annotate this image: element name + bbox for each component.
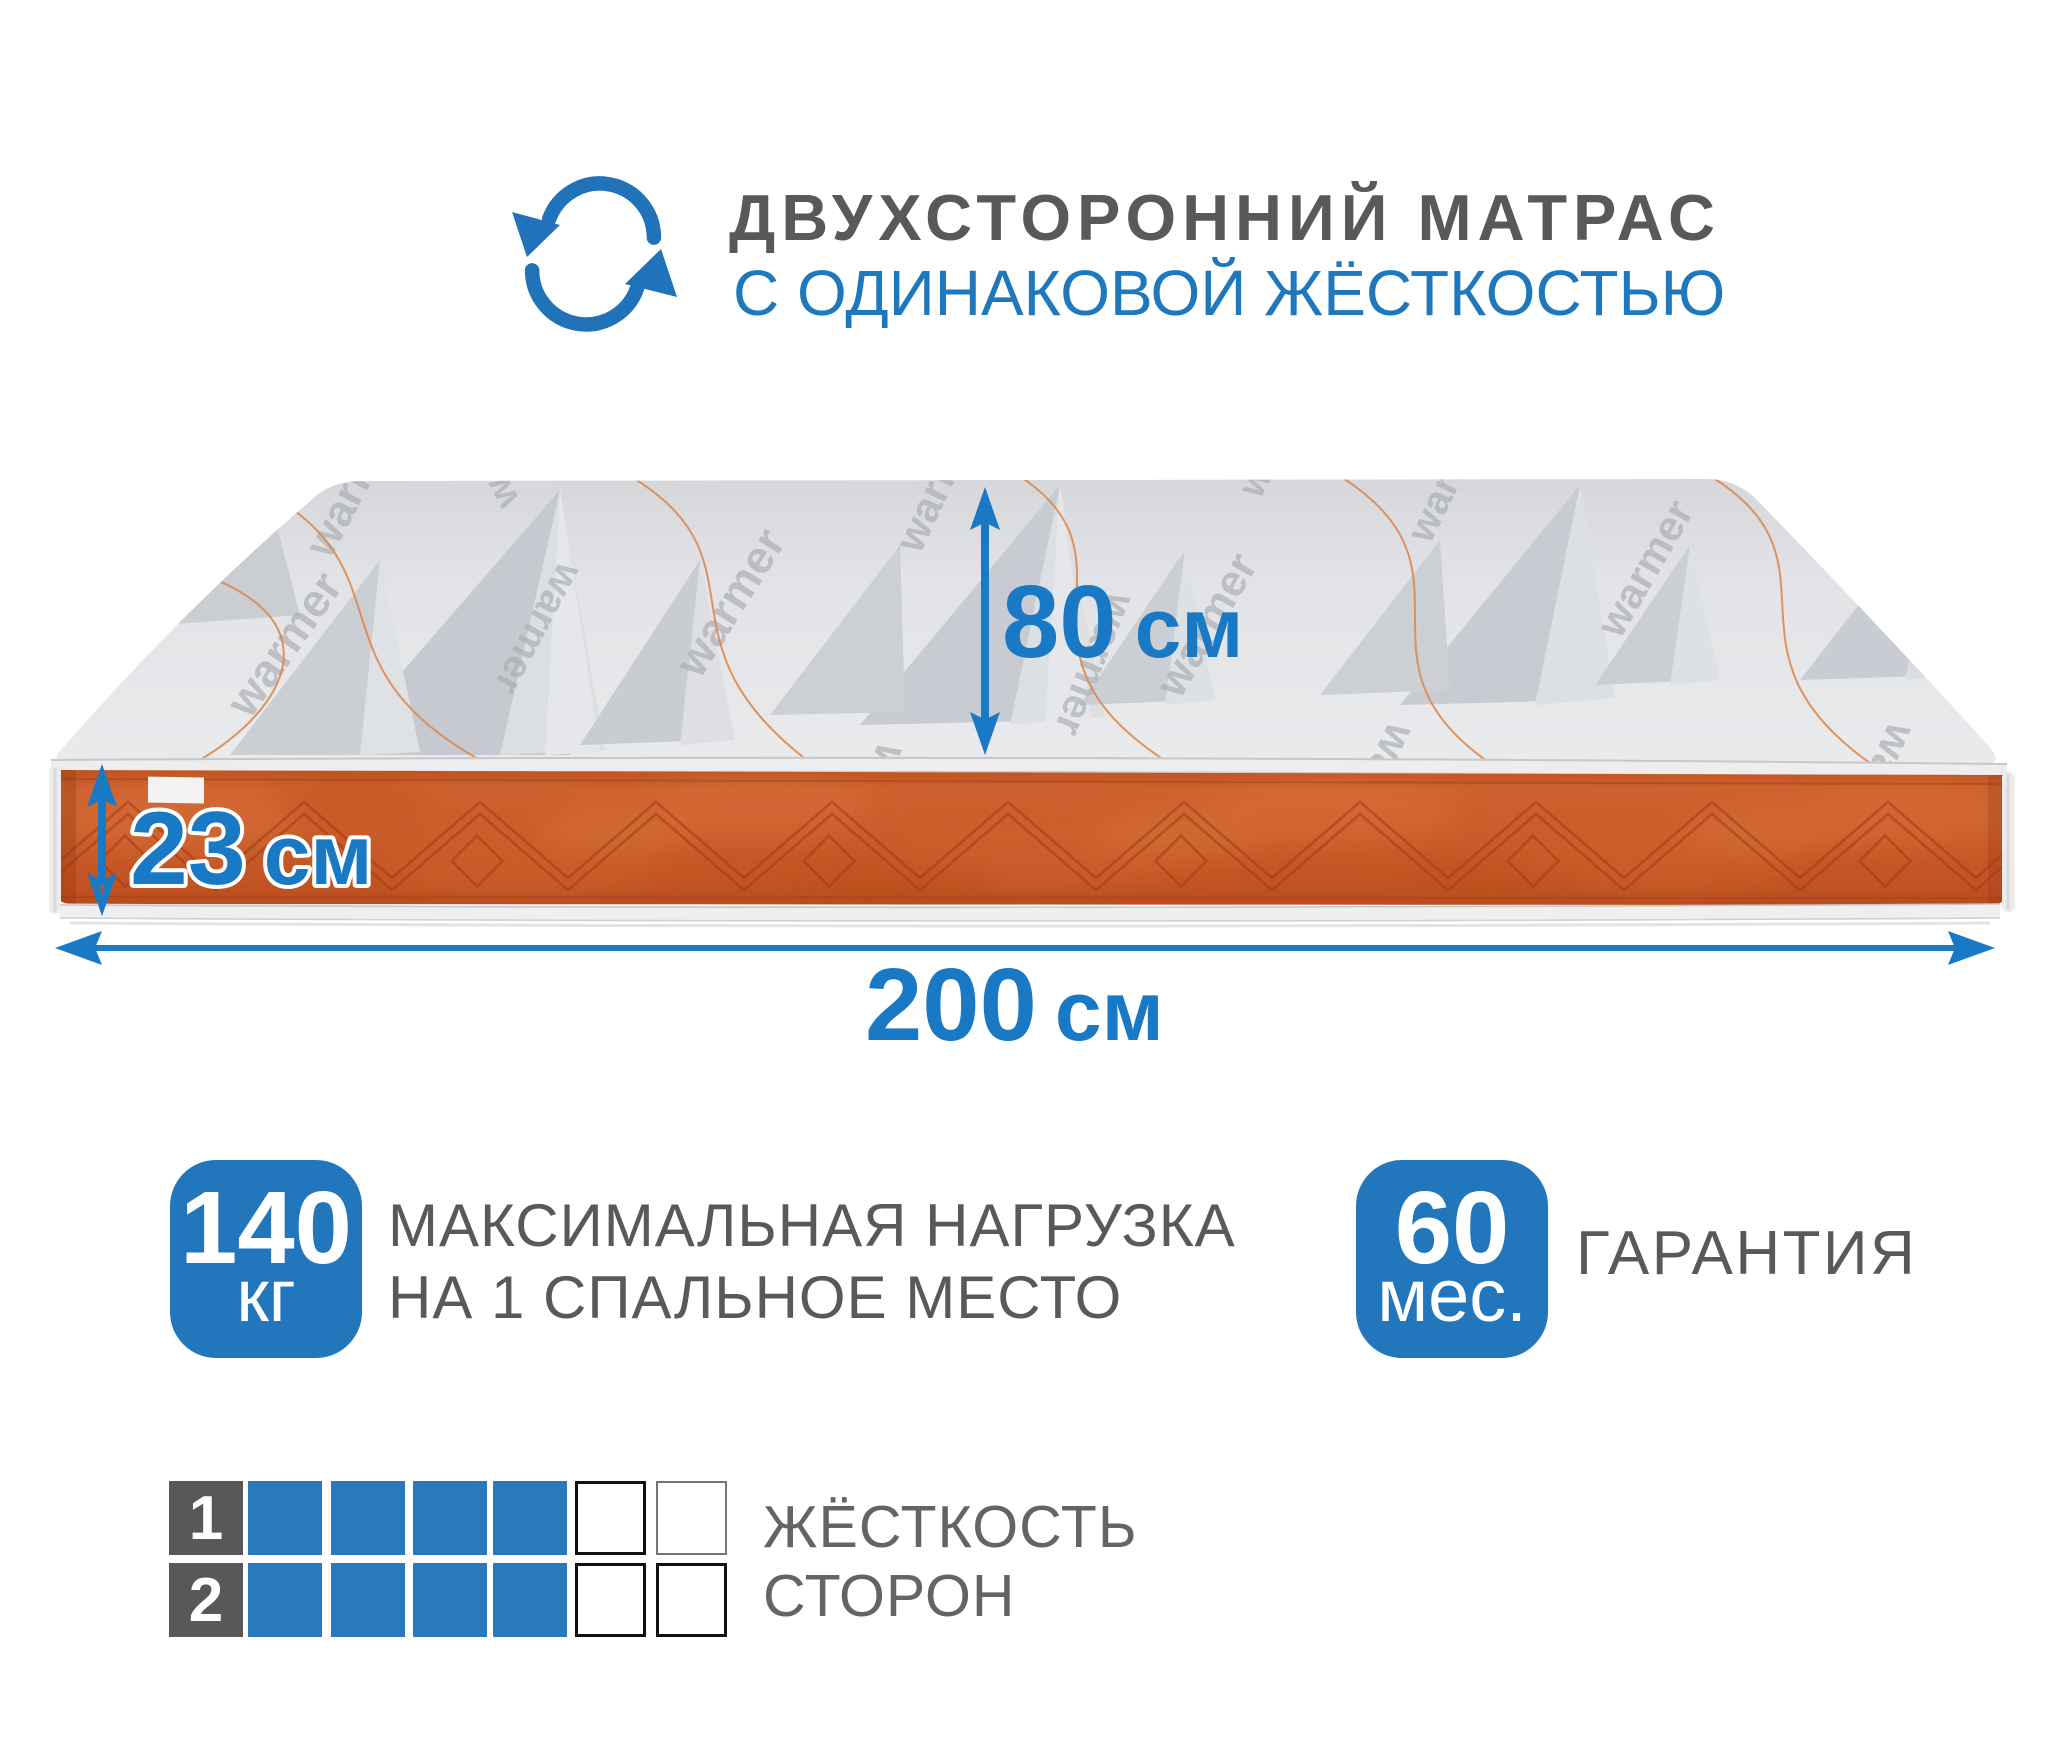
svg-text:200см: 200см [865, 947, 1164, 1062]
svg-text:warmer: warmer [1808, 430, 1912, 565]
